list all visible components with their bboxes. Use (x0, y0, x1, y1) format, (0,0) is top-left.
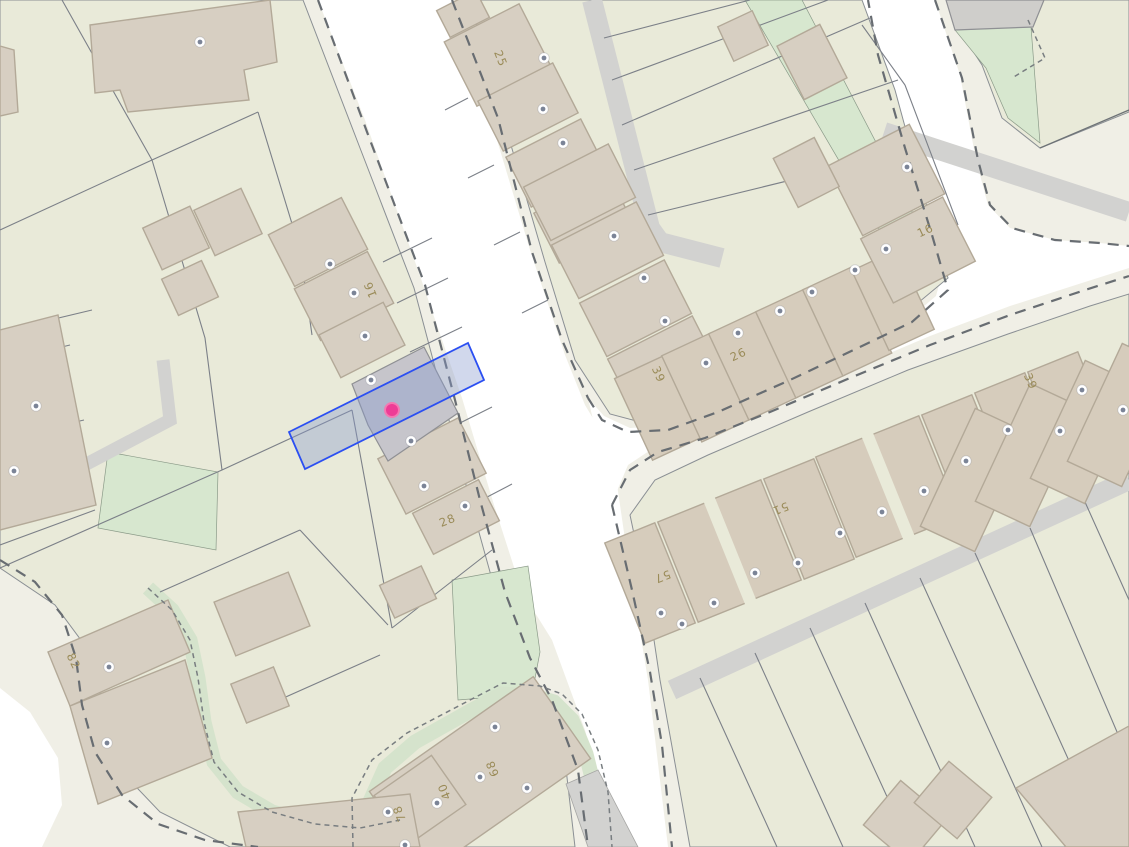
map-svg: 25162839261639575182684078 (0, 0, 1129, 847)
entrance-dot (9, 466, 19, 476)
entrance-dot (400, 840, 410, 847)
entrance-dot (360, 331, 370, 341)
selected-location-marker[interactable] (385, 403, 399, 417)
entrance-dot (1003, 425, 1013, 435)
entrance-dot (490, 722, 500, 732)
entrance-dot (701, 358, 711, 368)
entrance-dot (31, 401, 41, 411)
entrance-dot (419, 481, 429, 491)
entrance-dot (102, 738, 112, 748)
entrance-dot (877, 507, 887, 517)
green-square-center (452, 566, 540, 700)
map-canvas[interactable]: 25162839261639575182684078 (0, 0, 1129, 847)
entrance-dot (793, 558, 803, 568)
entrance-dot (609, 231, 619, 241)
entrance-dot (709, 598, 719, 608)
entrance-dot (961, 456, 971, 466)
entrance-dot (195, 37, 205, 47)
entrance-dot (750, 568, 760, 578)
building-gray (946, 0, 1044, 30)
entrance-dot (104, 662, 114, 672)
entrance-dot (660, 316, 670, 326)
entrance-dot (639, 273, 649, 283)
entrance-dot (522, 783, 532, 793)
entrance-dot (475, 772, 485, 782)
entrance-dot (539, 53, 549, 63)
entrance-dot (807, 287, 817, 297)
entrance-dot (1077, 385, 1087, 395)
entrance-dot (677, 619, 687, 629)
entrance-dot (775, 306, 785, 316)
entrance-dot (733, 328, 743, 338)
entrance-dot (1055, 426, 1065, 436)
entrance-dot (538, 104, 548, 114)
entrance-dot (325, 259, 335, 269)
entrance-dot (656, 608, 666, 618)
entrance-dot (349, 288, 359, 298)
entrance-dot (902, 162, 912, 172)
entrance-dot (406, 436, 416, 446)
entrance-dot (835, 528, 845, 538)
entrance-dot (1118, 405, 1128, 415)
entrance-dot (558, 138, 568, 148)
entrance-dot (460, 501, 470, 511)
entrance-dot (366, 375, 376, 385)
entrance-dot (881, 244, 891, 254)
entrance-dot (850, 265, 860, 275)
entrance-dot (919, 486, 929, 496)
